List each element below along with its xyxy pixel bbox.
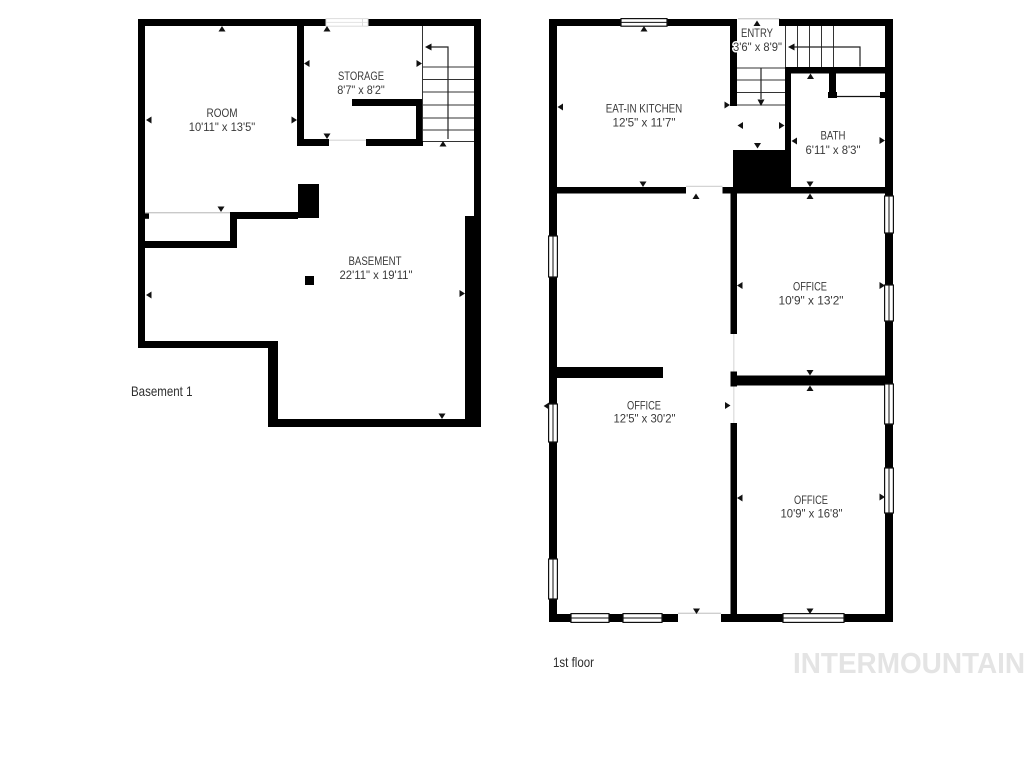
svg-text:OFFICE: OFFICE <box>793 281 827 294</box>
svg-text:12'5" x 11'7": 12'5" x 11'7" <box>613 117 676 130</box>
svg-text:STORAGE: STORAGE <box>338 70 384 83</box>
svg-text:10'9" x 16'8": 10'9" x 16'8" <box>781 508 843 521</box>
svg-text:1st floor: 1st floor <box>553 654 594 670</box>
svg-text:ROOM: ROOM <box>207 107 238 120</box>
svg-text:OFFICE: OFFICE <box>627 400 661 413</box>
svg-text:10'9" x 13'2": 10'9" x 13'2" <box>779 295 844 308</box>
svg-text:8'7" x 8'2": 8'7" x 8'2" <box>337 84 385 97</box>
svg-text:Basement 1: Basement 1 <box>131 383 193 399</box>
svg-text:EAT-IN KITCHEN: EAT-IN KITCHEN <box>606 103 683 116</box>
svg-text:22'11" x 19'11": 22'11" x 19'11" <box>340 269 413 282</box>
svg-text:BATH: BATH <box>821 130 846 143</box>
svg-text:12'5" x 30'2": 12'5" x 30'2" <box>614 413 676 426</box>
svg-text:BASEMENT: BASEMENT <box>349 255 402 268</box>
svg-text:INTERMOUNTAIN: INTERMOUNTAIN <box>793 648 1024 680</box>
svg-text:6'11" x 8'3": 6'11" x 8'3" <box>806 144 861 157</box>
svg-text:ENTRY: ENTRY <box>741 27 773 40</box>
svg-text:3'6" x 8'9": 3'6" x 8'9" <box>733 41 782 54</box>
svg-text:10'11" x 13'5": 10'11" x 13'5" <box>189 121 256 134</box>
svg-text:OFFICE: OFFICE <box>794 494 828 507</box>
